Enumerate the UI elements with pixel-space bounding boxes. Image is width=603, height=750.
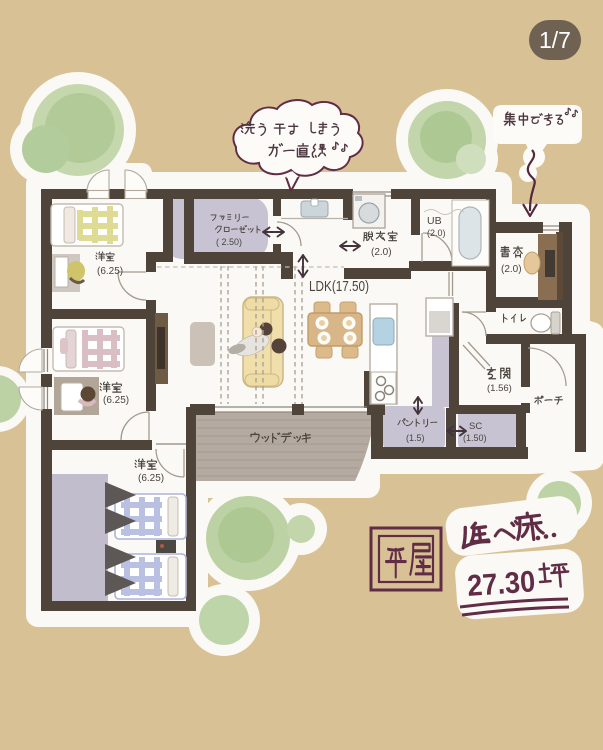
svg-text:SC: SC xyxy=(469,421,482,432)
svg-text:(1.5): (1.5) xyxy=(406,433,425,443)
svg-text:(2.0): (2.0) xyxy=(427,228,446,238)
svg-text:(1.50): (1.50) xyxy=(463,433,487,443)
svg-text:(2.0): (2.0) xyxy=(371,247,392,258)
svg-text:(1.56): (1.56) xyxy=(487,383,512,394)
svg-text:LDK(17.50): LDK(17.50) xyxy=(309,278,369,295)
svg-text:UB: UB xyxy=(427,215,442,227)
svg-text:(2.0): (2.0) xyxy=(501,264,522,275)
svg-text:( 2.50): ( 2.50) xyxy=(216,237,242,247)
svg-text:(6.25): (6.25) xyxy=(103,395,129,406)
svg-text:(6.25): (6.25) xyxy=(97,266,123,277)
svg-text:(6.25): (6.25) xyxy=(138,473,164,484)
svg-text:1/7: 1/7 xyxy=(539,27,571,53)
svg-text:27.30: 27.30 xyxy=(466,565,536,603)
